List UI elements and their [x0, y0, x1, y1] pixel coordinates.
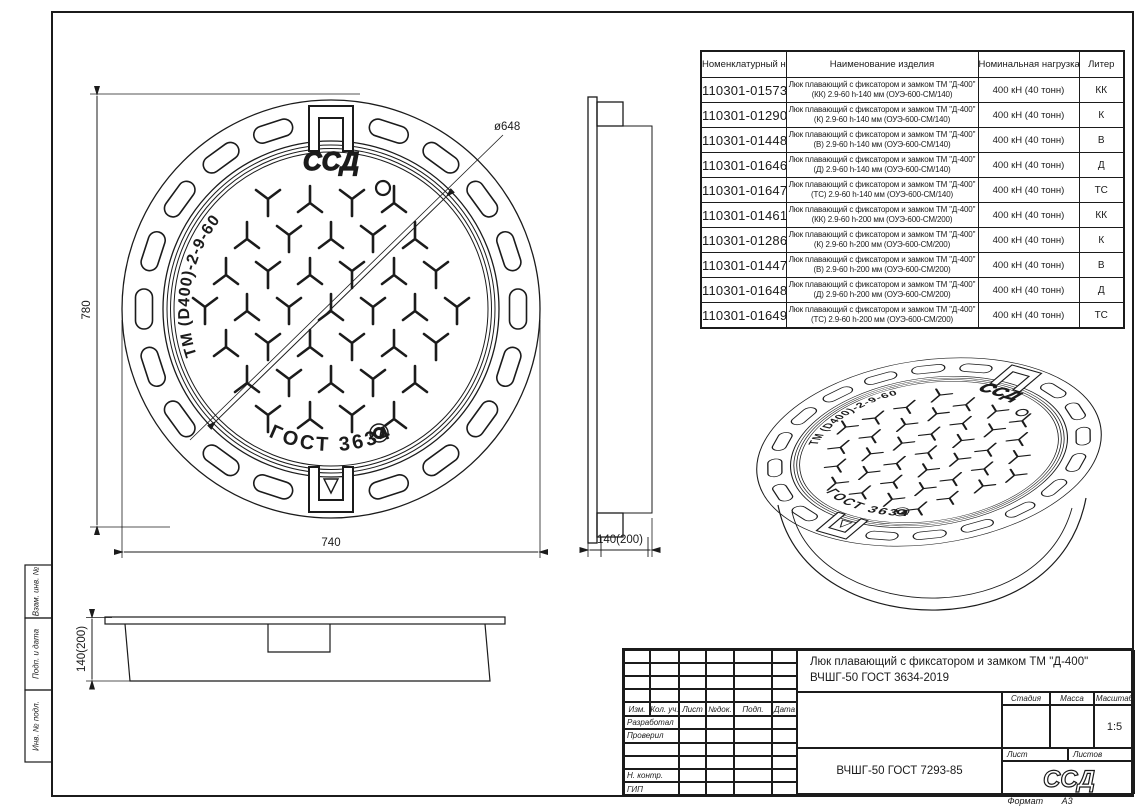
frame-label-podp: Подп. и дата [32, 628, 41, 679]
revision-table: Изм.Кол. уч.Лист№док.Подп.ДатаРазработал… [624, 650, 797, 796]
cell-product-name: Люк плавающий с фиксатором и замком ТМ "… [786, 78, 978, 103]
parts-table: Номенклатурный номер Наименование издели… [700, 50, 1125, 329]
scale-header: Масштаб [1094, 692, 1135, 705]
title-block-cell [734, 663, 772, 676]
cell-nomenclature-number: 110301-01573 [701, 78, 786, 103]
format-label-text: Формат [1007, 796, 1043, 806]
stage-value [1002, 705, 1050, 748]
frame-label-vzam: Взам. инв. № [32, 566, 41, 616]
cover-logo: ССД [974, 380, 1027, 403]
dim-width-label: 740 [321, 537, 340, 549]
title-block-cell [734, 769, 772, 782]
title-block-cell [679, 650, 706, 663]
title-block-cell [772, 729, 797, 742]
col-header-product-name: Наименование изделия [786, 51, 978, 78]
format-value: А3 [1062, 796, 1073, 806]
format-label: Формат А3 [960, 796, 1120, 806]
title-block-cell [650, 676, 679, 689]
cell-product-name: Люк плавающий с фиксатором и замком ТМ "… [786, 253, 978, 278]
col-header-nomenclature-number: Номенклатурный номер [701, 51, 786, 78]
title-block-cell [679, 769, 706, 782]
cell-product-name: Люк плавающий с фиксатором и замком ТМ "… [786, 128, 978, 153]
title-block-cell [679, 663, 706, 676]
engineering-drawing-sheet: Взам. инв. № Подп. и дата Инв. № подл. С… [0, 0, 1144, 808]
cell-nomenclature-number: 110301-01648 [701, 278, 786, 303]
signature-row-label: Проверил [624, 729, 679, 742]
title-block-cell [734, 743, 772, 756]
table-row: 110301-01646 Люк плавающий с фиксатором … [701, 153, 1124, 178]
table-row: 110301-01447 Люк плавающий с фиксатором … [701, 253, 1124, 278]
title-block-cell [734, 716, 772, 729]
title-block-cell [734, 676, 772, 689]
revision-col-header: Лист [679, 702, 706, 716]
col-header-liter: Литер [1079, 51, 1124, 78]
iso-view-cover: ССДТМ (D400)-2-9-60ГОСТ 3634 [689, 327, 1144, 578]
cell-product-name: Люк плавающий с фиксатором и замком ТМ "… [786, 178, 978, 203]
logo-graphic: ССД [1014, 763, 1124, 793]
title-block-cell [624, 663, 650, 676]
title-block-cell [706, 756, 734, 769]
revision-col-header: №док. [706, 702, 734, 716]
title-block-cell [772, 756, 797, 769]
title-block-cell [706, 663, 734, 676]
cell-nomenclature-number: 110301-01286 [701, 228, 786, 253]
revision-col-header: Изм. [624, 702, 650, 716]
cell-product-name: Люк плавающий с фиксатором и замком ТМ "… [786, 303, 978, 329]
signature-row-label: ГИП [624, 782, 679, 795]
table-row: 110301-01461 Люк плавающий с фиксатором … [701, 203, 1124, 228]
cover-gost-marking: ГОСТ 3634 [266, 421, 396, 456]
cell-nomenclature-number: 110301-01447 [701, 253, 786, 278]
frame-notch [268, 624, 330, 652]
dim-side-depth-label: 140(200) [597, 534, 643, 546]
cell-liter: ТС [1079, 178, 1124, 203]
scale-value: 1:5 [1094, 705, 1135, 748]
title-block-cell [679, 689, 706, 702]
side-cover-plate [588, 97, 597, 543]
title-block-cell [706, 743, 734, 756]
cell-nominal-load: 400 кН (40 тонн) [978, 203, 1079, 228]
table-row: 110301-01648 Люк плавающий с фиксатором … [701, 278, 1124, 303]
iso-frame-skirt [778, 498, 1086, 610]
title-block-cell [706, 769, 734, 782]
cell-liter: К [1079, 228, 1124, 253]
title-block-cell [734, 650, 772, 663]
title-block-cell [772, 663, 797, 676]
title-block-cell [679, 676, 706, 689]
signature-row-label [624, 756, 679, 769]
title-block-cell [624, 676, 650, 689]
dim-diameter-label: ø648 [494, 121, 520, 133]
cell-nominal-load: 400 кН (40 тонн) [978, 253, 1079, 278]
title-block-cell [706, 782, 734, 795]
title-block-cell [679, 756, 706, 769]
revision-col-header: Кол. уч. [650, 702, 679, 716]
table-row: 110301-01573 Люк плавающий с фиксатором … [701, 78, 1124, 103]
signature-row-label: Разработал [624, 716, 679, 729]
cell-nominal-load: 400 кН (40 тонн) [978, 78, 1079, 103]
title-block-cell [772, 743, 797, 756]
title-block-cell [624, 650, 650, 663]
sheet-label: Лист [1002, 748, 1068, 761]
title-block-cell [650, 663, 679, 676]
cell-nominal-load: 400 кН (40 тонн) [978, 128, 1079, 153]
title-block-cell [734, 689, 772, 702]
bottom-view [105, 617, 505, 681]
frame-label-inv: Инв. № подл. [32, 701, 41, 751]
title-block-cell [650, 650, 679, 663]
sheets-label: Листов [1068, 748, 1135, 761]
drawing-title: Люк плавающий с фиксатором и замком ТМ "… [797, 650, 1135, 692]
title-block-cell [706, 716, 734, 729]
cell-liter: В [1079, 128, 1124, 153]
designation-cell [797, 692, 1002, 748]
mass-value [1050, 705, 1094, 748]
signature-row-label: Н. контр. [624, 769, 679, 782]
cell-nominal-load: 400 кН (40 тонн) [978, 228, 1079, 253]
cell-nomenclature-number: 110301-01448 [701, 128, 786, 153]
title-block-cell [706, 729, 734, 742]
table-row: 110301-01649 Люк плавающий с фиксатором … [701, 303, 1124, 329]
title-block-cell [772, 769, 797, 782]
side-view [588, 97, 652, 557]
cell-product-name: Люк плавающий с фиксатором и замком ТМ "… [786, 228, 978, 253]
title-block-cell [706, 689, 734, 702]
cell-nomenclature-number: 110301-01461 [701, 203, 786, 228]
title-line2: ВЧШГ-50 ГОСТ 3634-2019 [810, 671, 949, 687]
cell-product-name: Люк плавающий с фиксатором и замком ТМ "… [786, 278, 978, 303]
revision-col-header: Дата [772, 702, 797, 716]
signature-row-label [624, 743, 679, 756]
title-block-cell [706, 676, 734, 689]
side-frame-body [597, 126, 652, 513]
iso-view: ССДТМ (D400)-2-9-60ГОСТ 3634 [689, 327, 1144, 578]
revision-col-header: Подп. [734, 702, 772, 716]
cover-brand-marking: ТМ (D400)-2-9-60 [176, 212, 224, 360]
cell-nominal-load: 400 кН (40 тонн) [978, 278, 1079, 303]
table-row: 110301-01290 Люк плавающий с фиксатором … [701, 103, 1124, 128]
title-block: Изм.Кол. уч.Лист№док.Подп.ДатаРазработал… [622, 648, 1133, 796]
title-block-cell [650, 689, 679, 702]
cell-liter: КК [1079, 203, 1124, 228]
title-block-cell [706, 650, 734, 663]
title-block-cell [772, 689, 797, 702]
cell-liter: Д [1079, 278, 1124, 303]
cover-logo: ССД [303, 146, 360, 176]
title-block-cell [772, 650, 797, 663]
title-block-cell [679, 743, 706, 756]
material-cell: ВЧШГ-50 ГОСТ 7293-85 [797, 748, 1002, 794]
cell-liter: ТС [1079, 303, 1124, 329]
company-logo: ССД [1002, 761, 1135, 794]
cell-liter: К [1079, 103, 1124, 128]
dimensions: 780 740 ø648 140(200) 140(200) [76, 94, 652, 681]
cell-nominal-load: 400 кН (40 тонн) [978, 103, 1079, 128]
title-line1: Люк плавающий с фиксатором и замком ТМ "… [810, 655, 1088, 671]
cell-product-name: Люк плавающий с фиксатором и замком ТМ "… [786, 153, 978, 178]
stage-header: Стадия [1002, 692, 1050, 705]
table-row: 110301-01647 Люк плавающий с фиксатором … [701, 178, 1124, 203]
title-block-cell [624, 689, 650, 702]
side-top-lock-tab [597, 102, 623, 126]
cell-product-name: Люк плавающий с фиксатором и замком ТМ "… [786, 103, 978, 128]
cell-nomenclature-number: 110301-01647 [701, 178, 786, 203]
cell-nomenclature-number: 110301-01290 [701, 103, 786, 128]
cell-product-name: Люк плавающий с фиксатором и замком ТМ "… [786, 203, 978, 228]
title-block-cell [772, 716, 797, 729]
title-block-cell [734, 756, 772, 769]
title-block-cell [679, 729, 706, 742]
cover-brand-marking: ТМ (D400)-2-9-60 [801, 382, 905, 452]
frame-flange [105, 617, 505, 624]
title-block-cell [772, 782, 797, 795]
mass-header: Масса [1050, 692, 1094, 705]
logo-text: ССД [1043, 766, 1095, 793]
cell-nominal-load: 400 кН (40 тонн) [978, 153, 1079, 178]
cell-nominal-load: 400 кН (40 тонн) [978, 178, 1079, 203]
title-block-cell [679, 716, 706, 729]
dim-bottom-depth-label: 140(200) [76, 626, 88, 672]
cell-liter: Д [1079, 153, 1124, 178]
cell-nomenclature-number: 110301-01649 [701, 303, 786, 329]
cell-nomenclature-number: 110301-01646 [701, 153, 786, 178]
title-block-cell [734, 782, 772, 795]
col-header-nominal-load: Номинальная нагрузка [978, 51, 1079, 78]
table-row: 110301-01448 Люк плавающий с фиксатором … [701, 128, 1124, 153]
title-block-cell [772, 676, 797, 689]
cell-nominal-load: 400 кН (40 тонн) [978, 303, 1079, 329]
dim-height-label: 780 [81, 300, 93, 319]
title-block-cell [734, 729, 772, 742]
cell-liter: КК [1079, 78, 1124, 103]
table-row: 110301-01286 Люк плавающий с фиксатором … [701, 228, 1124, 253]
cell-liter: В [1079, 253, 1124, 278]
title-block-cell [679, 782, 706, 795]
